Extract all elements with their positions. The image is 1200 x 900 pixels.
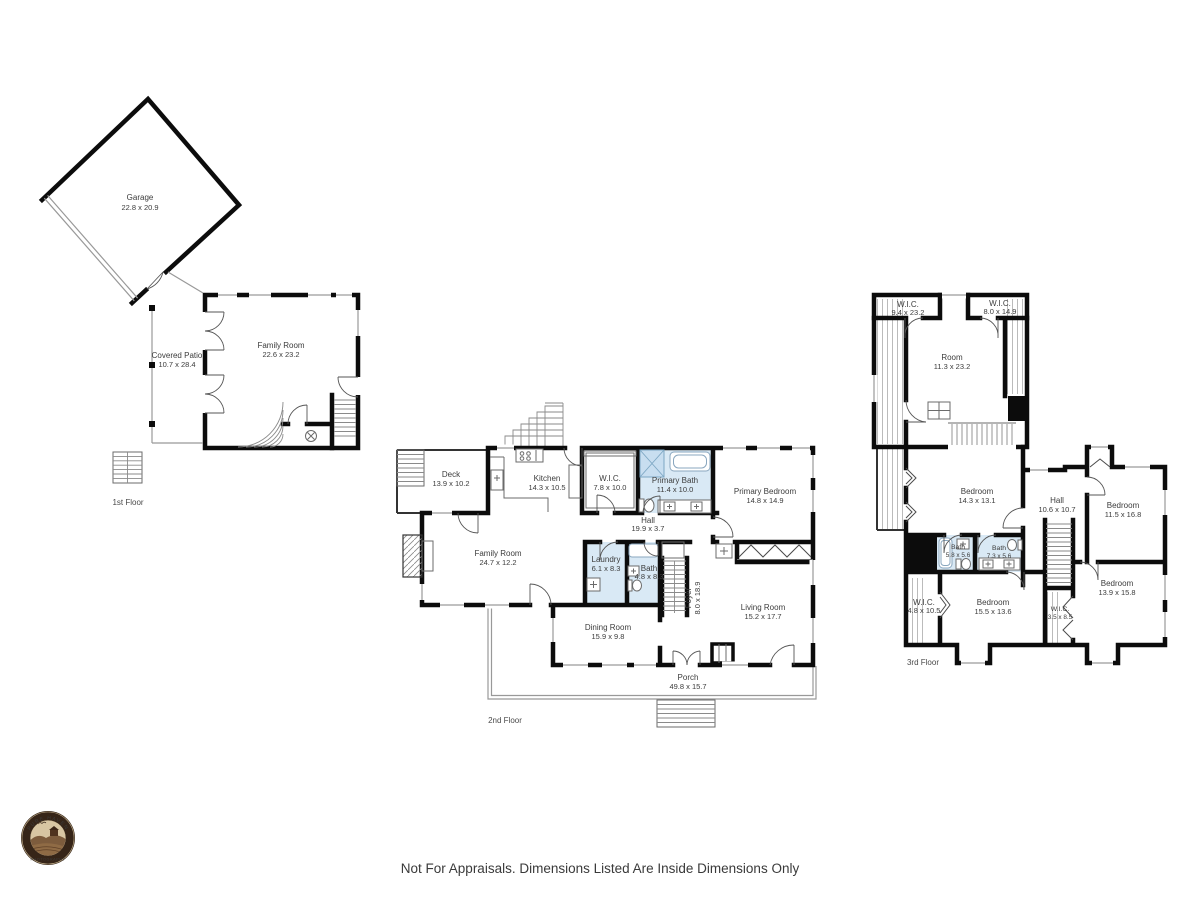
second-floor-plan: Deck 13.9 x 10.2 Kitchen 14.3 x 10.5 W.I… xyxy=(397,403,817,727)
room-dims-primary-bath: 11.4 x 10.0 xyxy=(657,485,694,494)
room-dims-bedroom3: 15.5 x 13.6 xyxy=(974,607,1011,616)
room-label-bedroom2: Bedroom xyxy=(1107,501,1140,510)
room-dims-kitchen: 14.3 x 10.5 xyxy=(528,483,565,492)
stove-icon xyxy=(516,449,543,462)
room-dims-family-room-1: 22.6 x 23.2 xyxy=(262,350,299,359)
tower-stairs-icon xyxy=(948,423,1016,445)
entry-closet xyxy=(712,644,733,663)
room-label-wic2: W.I.C. xyxy=(599,474,621,483)
first-floor-label: 1st Floor xyxy=(112,498,143,507)
room-dims-dining: 15.9 x 9.8 xyxy=(592,632,625,641)
room-label-bedroom4: Bedroom xyxy=(1101,579,1134,588)
third-floor-label: 3rd Floor xyxy=(907,658,939,667)
room-dims-hall3: 10.6 x 10.7 xyxy=(1038,505,1075,514)
room-dims-laundry: 6.1 x 8.3 xyxy=(592,564,621,573)
photographer-logo: PURE HAVEN PHOTOGRAPHY xyxy=(21,811,75,865)
laundry-fixtures xyxy=(587,578,600,591)
first-floor-windows xyxy=(218,292,362,337)
utility-door-icon xyxy=(288,405,307,424)
room-dims-primary-bedroom: 14.8 x 14.9 xyxy=(746,496,783,505)
room-dims-bath2: 4.8 x 8.3 xyxy=(635,572,664,581)
room-label-living: Living Room xyxy=(741,603,786,612)
room-table xyxy=(928,402,950,419)
room-dims-wic-tower-left: 9.4 x 23.2 xyxy=(892,308,925,317)
laundry-area xyxy=(585,542,627,605)
room-label-bedroom1: Bedroom xyxy=(961,487,994,496)
room-dims-covered-patio: 10.7 x 28.4 xyxy=(158,360,195,369)
fireplace-icon xyxy=(403,535,433,577)
room-label-laundry: Laundry xyxy=(592,555,621,564)
room-label-family-room-1: Family Room xyxy=(257,341,304,350)
room-dims-bedroom4: 13.9 x 15.8 xyxy=(1098,588,1135,597)
room-dims-wic-bl: 4.8 x 10.5 xyxy=(908,606,941,615)
room-dims-porch: 49.8 x 15.7 xyxy=(669,682,706,691)
main-stairs-icon xyxy=(662,542,686,613)
room-label-covered-patio: Covered Patio xyxy=(152,351,203,360)
floor-plan-drawing: Garage 22.8 x 20.9 Covered Patio 10.7 x … xyxy=(0,0,1200,900)
first-floor-plan: Garage 22.8 x 20.9 Covered Patio 10.7 x … xyxy=(42,99,362,507)
room-label-kitchen: Kitchen xyxy=(534,474,561,483)
room-label-garage: Garage xyxy=(127,193,154,202)
room-label-dining: Dining Room xyxy=(585,623,632,632)
second-floor-label: 2nd Floor xyxy=(488,716,522,725)
room-label-foyer: Foyer xyxy=(684,587,693,608)
room-label-primary-bedroom: Primary Bedroom xyxy=(734,487,797,496)
room-dims-deck: 13.9 x 10.2 xyxy=(432,479,469,488)
room-dims-bath3a: 5.8 x 5.6 xyxy=(946,552,971,559)
room-dims-foyer: 8.0 x 18.9 xyxy=(693,582,702,615)
room-dims-room: 11.3 x 23.2 xyxy=(934,362,971,371)
room-label-family-room-2: Family Room xyxy=(474,549,521,558)
floor-plan-page: Garage 22.8 x 20.9 Covered Patio 10.7 x … xyxy=(0,0,1200,900)
room-dims-wic2: 7.8 x 10.0 xyxy=(594,483,627,492)
disclaimer-text: Not For Appraisals. Dimensions Listed Ar… xyxy=(0,861,1200,876)
room-label-hall3: Hall xyxy=(1050,496,1064,505)
room-label-room: Room xyxy=(941,353,963,362)
room-dims-bedroom2: 11.5 x 16.8 xyxy=(1105,510,1142,519)
room-dims-garage: 22.8 x 20.9 xyxy=(121,203,158,212)
room-dims-bath3b: 7.3 x 5.6 xyxy=(987,553,1012,560)
deck-stairs-icon xyxy=(397,450,424,486)
room-label-deck: Deck xyxy=(442,470,461,479)
curved-stairs-icon xyxy=(238,402,283,447)
third-floor-stairs-icon xyxy=(1046,524,1072,583)
room-dims-living: 15.2 x 17.7 xyxy=(744,612,781,621)
third-floor-plan: W.I.C. 9.4 x 23.2 W.I.C. 8.0 x 14.9 Room… xyxy=(871,292,1169,668)
chimney-top-block xyxy=(1008,396,1027,421)
room-dims-bedroom1: 14.3 x 13.1 xyxy=(958,496,995,505)
chimney-mid-block xyxy=(906,535,937,572)
room-label-bath3a: Bath xyxy=(951,544,965,551)
porch-steps-icon xyxy=(657,700,715,727)
back-stairs-icon xyxy=(505,403,563,448)
room-label-bedroom3: Bedroom xyxy=(977,598,1010,607)
room-label-bath3b: Bath xyxy=(992,545,1006,552)
entry-closet-shelves xyxy=(719,644,726,663)
room-dims-family-room-2: 24.7 x 12.2 xyxy=(479,558,516,567)
room-dims-hall2: 19.9 x 3.7 xyxy=(632,524,665,533)
water-heater-icon xyxy=(306,431,317,442)
room-label-wic-mid: W.I.C. xyxy=(1051,606,1070,613)
primary-closet-icon xyxy=(716,544,813,560)
exterior-stairs-icon xyxy=(113,452,142,483)
room-dims-wic-tower-right: 8.0 x 14.9 xyxy=(984,307,1017,316)
room-label-primary-bath: Primary Bath xyxy=(652,476,698,485)
room-label-porch: Porch xyxy=(678,673,699,682)
room-dims-wic-mid: 3.5 x 8.5 xyxy=(1048,614,1073,621)
